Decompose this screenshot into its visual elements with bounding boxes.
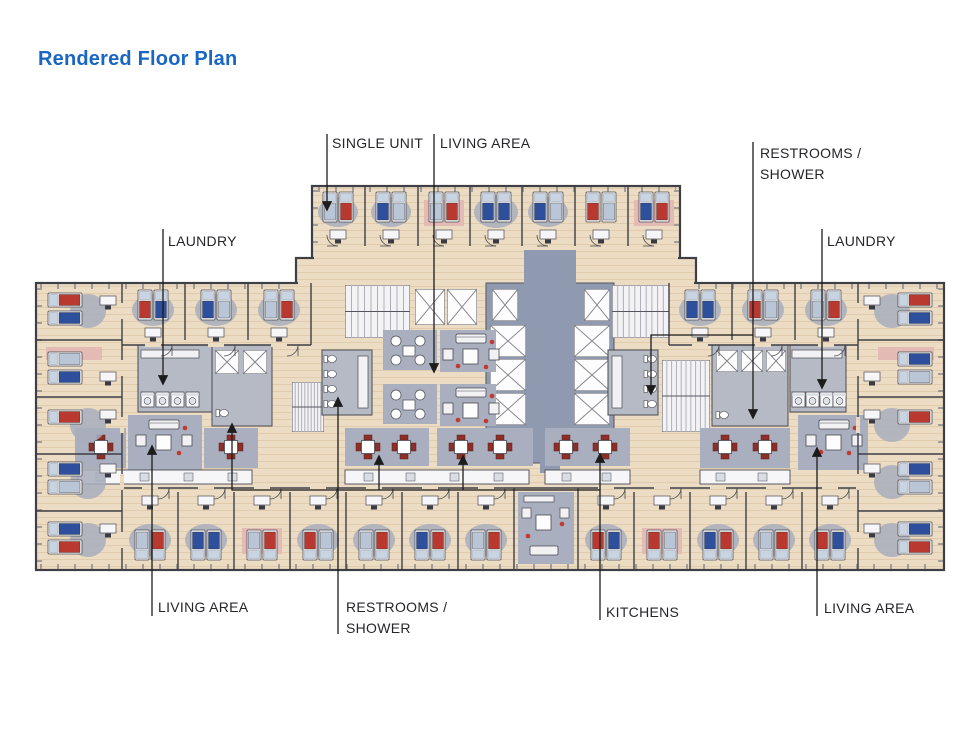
toilet (716, 412, 728, 419)
stairs-mid-left (292, 382, 324, 432)
shower-stall (766, 350, 786, 372)
rendered-floor-plan-page: Rendered Floor Plan SINGLE UNIT LIVING A… (0, 0, 980, 735)
stairs-mid-right (662, 360, 710, 432)
washer (171, 392, 184, 407)
shower-stall (243, 350, 267, 374)
washer (820, 392, 833, 407)
toilet (216, 410, 228, 417)
toilet (324, 386, 336, 393)
label-living-area-top: LIVING AREA (440, 133, 530, 154)
elevator (492, 289, 518, 321)
washer (141, 392, 154, 407)
toilet (644, 371, 656, 378)
toilet (644, 401, 656, 408)
toilet (324, 371, 336, 378)
washer (833, 392, 846, 407)
washer (806, 392, 819, 407)
elevator (584, 289, 610, 321)
label-laundry-left: LAUNDRY (168, 231, 237, 252)
page-title: Rendered Floor Plan (38, 48, 237, 71)
toilet (324, 356, 336, 363)
label-restrooms-shower-bottom: RESTROOMS / SHOWER (346, 597, 447, 639)
washer (186, 392, 199, 407)
elevator-shaft (574, 393, 610, 425)
label-kitchens: KITCHENS (606, 602, 679, 623)
bottom-center-lounge (518, 492, 574, 564)
elevator (415, 289, 445, 325)
elevator-shaft (574, 359, 610, 391)
elevator-shaft (574, 325, 610, 357)
washer (792, 392, 805, 407)
shower-stall (741, 350, 763, 372)
stairs-top-right (612, 285, 669, 338)
washer (156, 392, 169, 407)
label-living-area-bottom-left: LIVING AREA (158, 597, 248, 618)
elevator (447, 289, 477, 325)
toilet (324, 401, 336, 408)
label-living-area-bottom-right: LIVING AREA (824, 598, 914, 619)
label-restrooms-shower-right: RESTROOMS / SHOWER (760, 143, 861, 185)
toilet (644, 356, 656, 363)
toilet (644, 386, 656, 393)
label-single-unit: SINGLE UNIT (332, 133, 423, 154)
floor-plan-drawing (0, 0, 980, 735)
label-laundry-right: LAUNDRY (827, 231, 896, 252)
